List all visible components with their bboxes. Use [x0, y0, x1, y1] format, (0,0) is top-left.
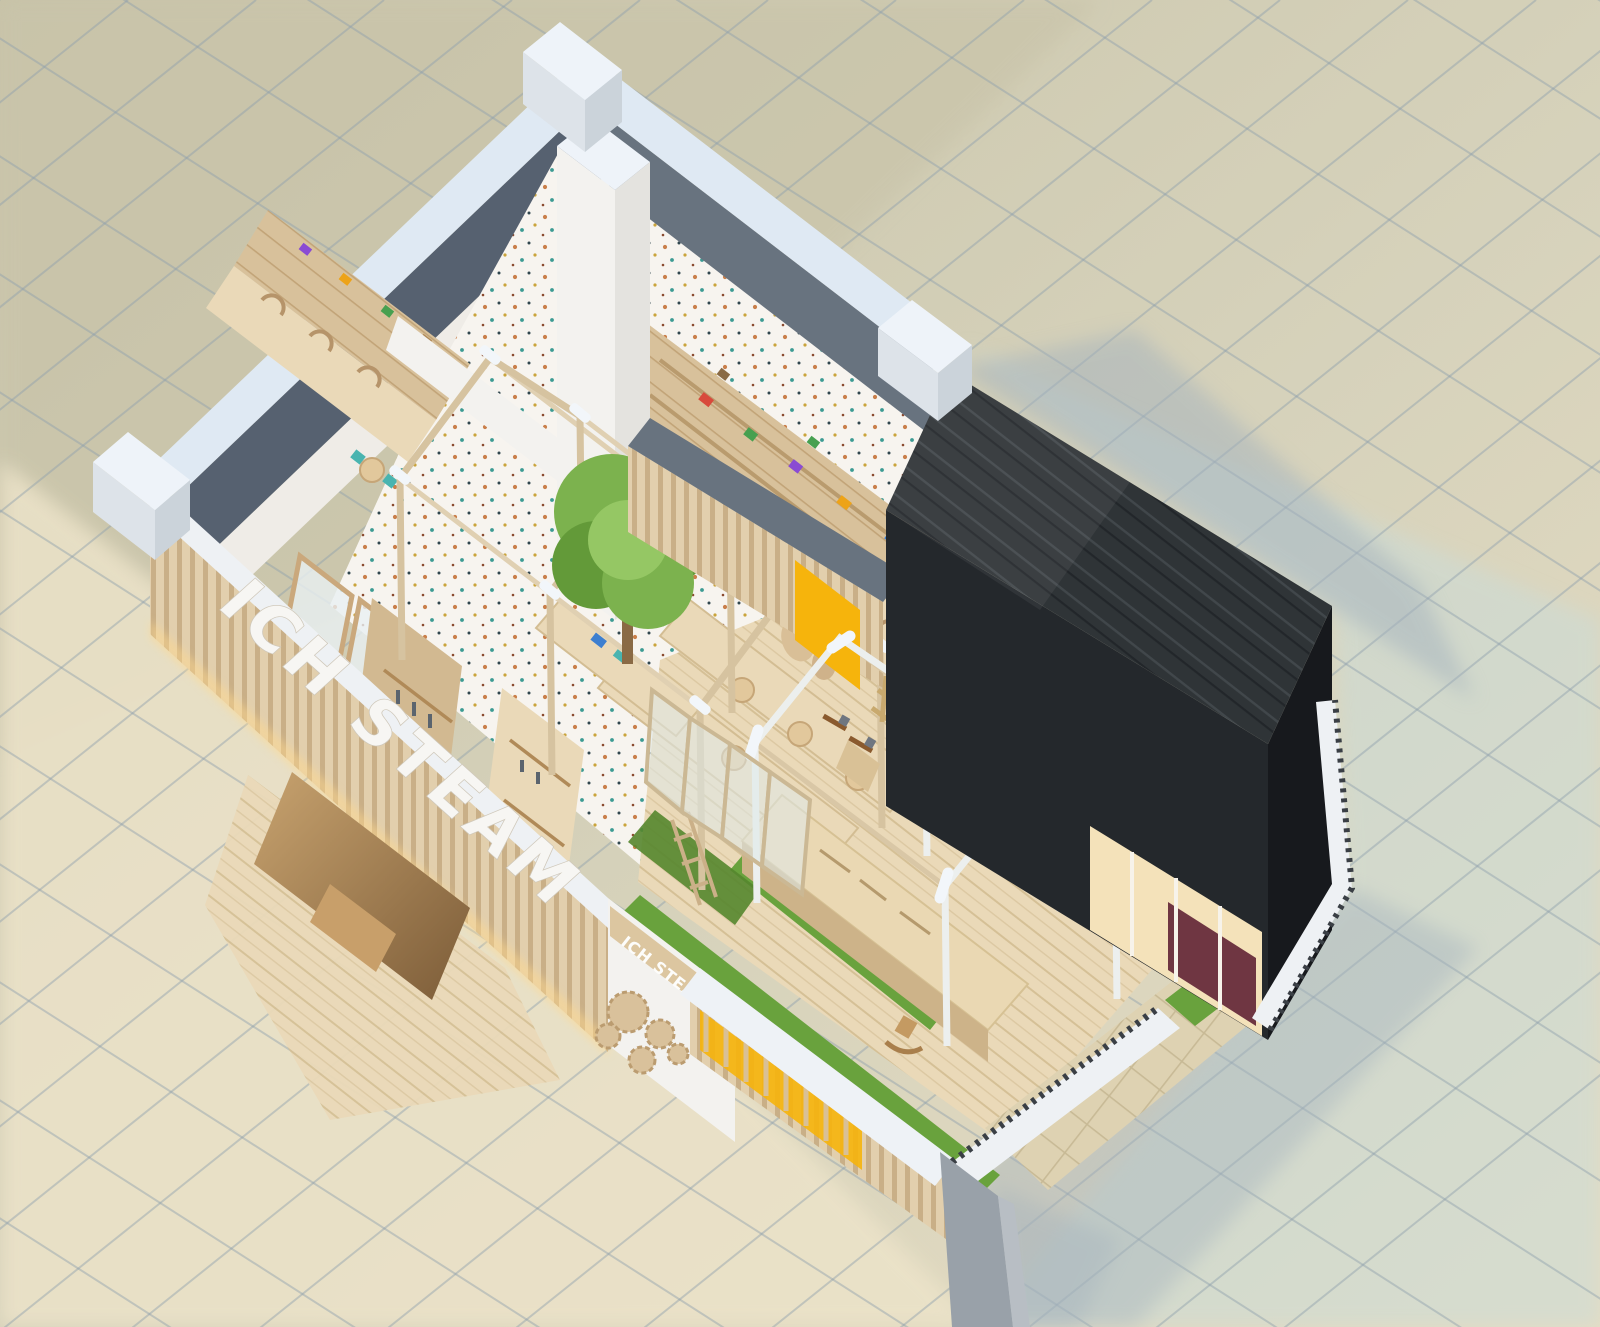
axonometric-render: ICH STEAM ICH STEAM 创造力工坊 [0, 0, 1600, 1327]
render-canvas: ICH STEAM ICH STEAM 创造力工坊 [0, 0, 1600, 1327]
round-stool [360, 458, 384, 482]
